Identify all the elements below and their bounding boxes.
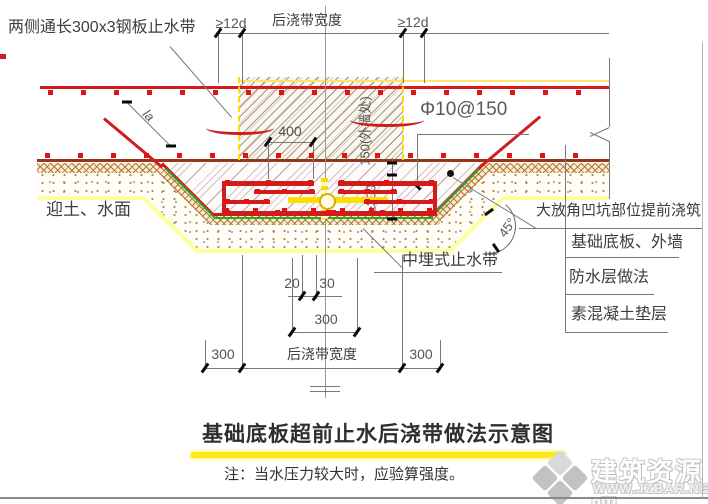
rebar-dot [266, 180, 271, 185]
top-dim-line [218, 33, 609, 34]
dim-tick [166, 145, 176, 148]
dim-band-width-top: 后浇带宽度 [272, 12, 342, 28]
rebar-dot [540, 153, 545, 158]
dim-tick [353, 327, 362, 338]
rebar-dot [276, 153, 281, 158]
rebar-dot [576, 90, 581, 95]
rebar-dot [309, 153, 314, 158]
rebar-spec-underline [417, 134, 529, 135]
break-line-zigzag-b [590, 132, 609, 142]
rebar-dot [78, 153, 83, 158]
rebar-dot [48, 90, 53, 95]
dim-400: 400 [278, 123, 301, 139]
rebar-dot [246, 90, 251, 95]
steel-plate-waterstop-right [350, 113, 424, 127]
rebar-dot [365, 189, 370, 194]
rebar-dot [384, 180, 389, 185]
dim-ge12d-left: ≥12d [215, 15, 246, 31]
drawing-title: 基础底板超前止水后浇带做法示意图 [202, 423, 554, 447]
rebar-dot [378, 90, 383, 95]
top-ext-2 [242, 33, 243, 83]
rebar-dot [114, 90, 119, 95]
slab-bottom-line [37, 159, 609, 162]
rebar-dot [225, 210, 230, 215]
rebar-dot [312, 90, 317, 95]
callout-underline-2 [565, 257, 679, 258]
rebar-dot [210, 153, 215, 158]
title-highlight-bar [191, 452, 565, 458]
break-line-upper [609, 58, 610, 127]
dim400-ext-r [313, 142, 314, 179]
top-ext-1 [218, 33, 219, 83]
centerline-mark-2 [310, 391, 340, 392]
callout-waterproof-layer: 防水层做法 [569, 269, 649, 287]
callout-pit-precast: 大放角凹坑部位提前浇筑 [536, 202, 701, 219]
rebar-dot [507, 153, 512, 158]
rebar-dot [311, 208, 316, 213]
rebar-dot [441, 153, 446, 158]
centerline-mark-1 [310, 386, 340, 387]
rebar-dot [573, 153, 578, 158]
rebar-dot [391, 189, 396, 194]
dim-tick [387, 162, 397, 165]
rebar-dot [282, 208, 287, 213]
rebar-dot [398, 208, 403, 213]
watermark-site-url: WWW.JZBAR.NET [593, 481, 708, 496]
break-line-lower [609, 141, 610, 199]
rebar-dot [339, 189, 344, 194]
rebar-dot [340, 208, 345, 213]
rebar-dot [397, 199, 402, 204]
rebar-dot [45, 153, 50, 158]
drawing-note: 注：当水压力较大时，应验算强度。 [224, 466, 464, 483]
rebar-dot [345, 90, 350, 95]
rebar-dot [331, 210, 336, 215]
rebar-dot [342, 153, 347, 158]
rebar-dot [408, 153, 413, 158]
rebar-dot [243, 153, 248, 158]
dim-ge12d-right: ≥12d [397, 14, 428, 30]
soil-water-side-label: 迎土、水面 [46, 200, 131, 220]
rebar-dot [213, 90, 218, 95]
layers-leader-vertical [565, 145, 566, 333]
rebar-dot [180, 90, 185, 95]
watermark: 建筑资源吧 WWW.JZBAR.NET [527, 449, 708, 504]
dim-150-wall: 150(外墙处) [359, 96, 374, 165]
rebar-dot [429, 210, 434, 215]
rebar-dot [474, 153, 479, 158]
rebar-dot [279, 90, 284, 95]
rebar-dot [365, 199, 370, 204]
rebar-dot [543, 90, 548, 95]
band-left-dashed-border [238, 77, 240, 160]
rebar-spec-leader [417, 134, 418, 186]
dim-tick [436, 363, 445, 374]
dim-la: la [139, 107, 157, 125]
rebar-dot [264, 199, 269, 204]
rebar-spec-label: Φ10@150 [420, 99, 507, 121]
dim-tick [387, 174, 397, 177]
rebar-dot [275, 210, 280, 215]
rebar-dot [144, 153, 149, 158]
rebar-dot [177, 153, 182, 158]
rebar-dot [308, 180, 313, 185]
dim-tick [122, 101, 132, 104]
waterstop-center-circle [319, 193, 336, 210]
rebar-dot [244, 199, 249, 204]
ext-band-l [242, 255, 243, 370]
dim-300-left: 300 [211, 346, 234, 362]
rebar-dot [444, 90, 449, 95]
dim300c-line [292, 332, 358, 333]
top-ext-3 [403, 33, 404, 83]
rebar-dot [309, 189, 314, 194]
rebar-dot [375, 153, 380, 158]
dim-300-center: 300 [314, 311, 337, 327]
rebar-dot [147, 90, 152, 95]
ext-300c-l [292, 258, 293, 334]
callout-plain-concrete: 素混凝土垫层 [571, 306, 667, 324]
steel-plate-callout: 两侧通长300x3钢板止水带 [8, 19, 196, 37]
rebar-dot [380, 210, 385, 215]
rebar-dot [225, 199, 230, 204]
dim400-line [268, 142, 314, 143]
rebar-dot [411, 90, 416, 95]
rebar-dot [339, 180, 344, 185]
steel-plate-leader [170, 46, 232, 118]
stray-red-mark [0, 54, 6, 59]
steel-plate-waterstop-left [206, 121, 274, 135]
dim-30: 30 [319, 275, 335, 291]
page-right-border [702, 42, 703, 498]
rebar-dot [81, 90, 86, 95]
ext-300c-r [357, 258, 358, 334]
dim-300-right: 300 [409, 346, 432, 362]
mid-waterstop-label: 中埋式止水带 [402, 252, 498, 270]
callout-underline-1 [519, 228, 703, 229]
rebar-dot [510, 90, 515, 95]
ext-band-r [402, 255, 403, 370]
rebar-dot [111, 153, 116, 158]
rebar-dot [225, 180, 230, 185]
callout-underline-3 [565, 294, 654, 295]
callout-underline-4 [565, 332, 668, 333]
callout-base-slab-wall: 基础底板、外墙 [571, 234, 683, 252]
dim-band-width-bottom: 后浇带宽度 [287, 346, 357, 362]
rebar-dot [429, 180, 434, 185]
rebar-dot [282, 189, 287, 194]
dim-tick [387, 218, 397, 221]
dim400-ext-l [268, 142, 269, 179]
rebar-dot [477, 90, 482, 95]
rebar-dot [255, 189, 260, 194]
rebar-dot [429, 199, 434, 204]
top-ext-4 [424, 33, 425, 83]
rebar-dot [369, 208, 374, 213]
construction-detail-drawing: ≥12d 后浇带宽度 ≥12d 400 150(外墙处) ≥300 两侧通长30… [0, 0, 708, 504]
page-bottom-border [0, 497, 708, 499]
mid-waterstop-underline [374, 272, 502, 273]
rebar-dot [253, 208, 258, 213]
